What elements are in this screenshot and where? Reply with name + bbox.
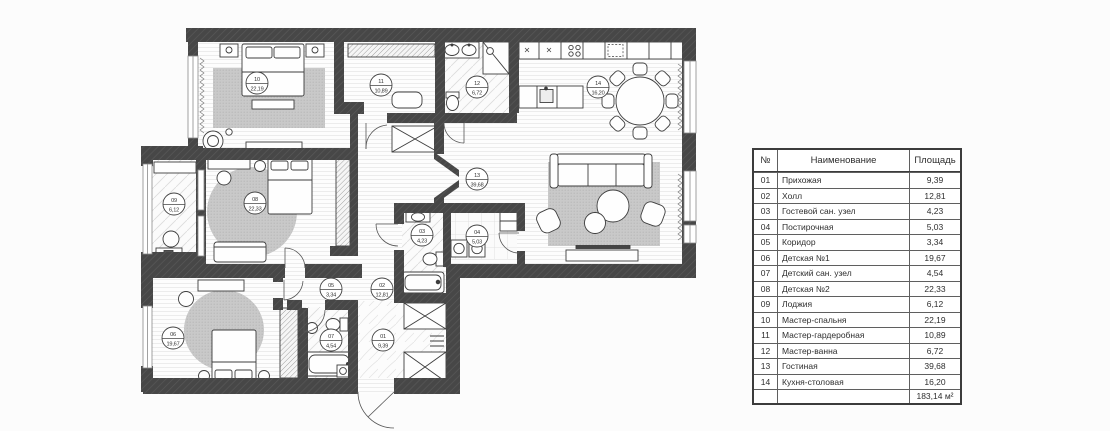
table-row: 14 Кухня-столовая 16,20 [754, 374, 960, 390]
svg-text:06: 06 [170, 332, 176, 338]
desk-kids1 [198, 280, 244, 291]
cell-name: Постирочная [778, 220, 910, 235]
cell-number: 11 [754, 328, 778, 343]
svg-text:5,03: 5,03 [472, 240, 482, 246]
floor-lamp [226, 129, 232, 135]
cell-number: 05 [754, 235, 778, 250]
room-label-09: 096,12 [163, 193, 185, 215]
room-label-07: 074,54 [320, 329, 342, 351]
svg-text:16,20: 16,20 [592, 91, 605, 97]
table-row: 06 Детская №1 19,67 [754, 250, 960, 266]
room-area-table: № Наименование Площадь 01 Прихожая 9,39 … [752, 148, 962, 405]
room-label-04: 045,03 [466, 225, 488, 247]
header-number: № [754, 150, 778, 171]
desk-chair-kids2 [217, 171, 231, 185]
svg-text:07: 07 [328, 334, 334, 340]
cell-name: Мастер-ванна [778, 344, 910, 359]
table-row: 03 Гостевой сан. узел 4,23 [754, 203, 960, 219]
room-label-05: 053,34 [320, 278, 342, 300]
svg-text:9,39: 9,39 [378, 344, 388, 350]
tv-console [566, 250, 638, 261]
coffee-table-small [585, 213, 606, 234]
cell-name: Гостиная [778, 359, 910, 374]
svg-text:39,68: 39,68 [471, 183, 484, 189]
window-master [188, 56, 198, 138]
header-area: Площадь [910, 150, 960, 171]
cell-name: Кухня-столовая [778, 375, 910, 390]
svg-text:09: 09 [171, 198, 177, 204]
svg-text:10: 10 [254, 77, 260, 83]
room-label-11: 1110,89 [370, 74, 392, 96]
tv [576, 246, 630, 249]
table-row: 01 Прихожая 9,39 [754, 172, 960, 188]
cell-area: 9,39 [910, 173, 960, 188]
svg-text:04: 04 [474, 230, 480, 236]
table-row: 02 Холл 12,81 [754, 188, 960, 204]
cell-area: 4,54 [910, 266, 960, 281]
svg-text:22,19: 22,19 [251, 87, 264, 93]
hall-closet [392, 126, 438, 152]
cell-name: Лоджия [778, 297, 910, 312]
cell-area: 6,72 [910, 344, 960, 359]
cell-area: 3,34 [910, 235, 960, 250]
table-row: 04 Постирочная 5,03 [754, 219, 960, 235]
kitchen-island [519, 86, 583, 108]
room-label-13: 1339,68 [466, 168, 488, 190]
door-entrance [358, 392, 394, 428]
svg-text:13: 13 [474, 173, 480, 179]
cell-area: 4,23 [910, 204, 960, 219]
svg-text:4,23: 4,23 [417, 239, 427, 245]
cell-name: Мастер-гардеробная [778, 328, 910, 343]
table-row: 09 Лоджия 6,12 [754, 296, 960, 312]
cell-name: Детская №2 [778, 282, 910, 297]
room-label-01: 019,39 [372, 329, 394, 351]
entry-wardrobe-bottom [404, 352, 446, 382]
cell-number: 13 [754, 359, 778, 374]
closet-rail [348, 44, 435, 57]
room-label-12: 126,72 [466, 76, 488, 98]
sofa [550, 154, 652, 188]
cell-number: 02 [754, 189, 778, 204]
cell-number: 12 [754, 344, 778, 359]
cell-name: Коридор [778, 235, 910, 250]
cell-name: Холл [778, 189, 910, 204]
closet-kids2 [336, 158, 350, 246]
room-label-08: 0822,33 [244, 192, 266, 214]
table-row: 12 Мастер-ванна 6,72 [754, 343, 960, 359]
loggia-shelf [154, 162, 196, 173]
cell-number: 04 [754, 220, 778, 235]
svg-text:22,33: 22,33 [249, 207, 262, 213]
svg-text:02: 02 [379, 283, 385, 289]
cell-number: 14 [754, 375, 778, 390]
cell-number: 03 [754, 204, 778, 219]
svg-text:01: 01 [380, 334, 386, 340]
table-header-row: № Наименование Площадь [754, 150, 960, 172]
svg-text:14: 14 [595, 81, 601, 87]
sofa-kids2 [214, 242, 266, 262]
cell-number: 09 [754, 297, 778, 312]
table-row: 13 Гостиная 39,68 [754, 358, 960, 374]
cell-area: 10,89 [910, 328, 960, 343]
cell-number: 06 [754, 251, 778, 266]
table-row: 07 Детский сан. узел 4,54 [754, 265, 960, 281]
window-kids1 [143, 306, 152, 368]
header-name: Наименование [778, 150, 910, 171]
cell-number: 01 [754, 173, 778, 188]
cell-area: 12,81 [910, 189, 960, 204]
svg-text:12,81: 12,81 [376, 293, 389, 299]
window-living-2 [684, 225, 696, 243]
loggia-chair [163, 231, 179, 247]
cell-name: Прихожая [778, 173, 910, 188]
floor-plan-sheet: 019,39 0212,81 034,23 045,03 053,34 0619… [0, 0, 1110, 431]
svg-text:08: 08 [252, 197, 258, 203]
table-total-row: 183,14 м² [754, 389, 960, 403]
cell-area: 39,68 [910, 359, 960, 374]
table-row: 05 Коридор 3,34 [754, 234, 960, 250]
entry-wardrobe-top [404, 303, 446, 329]
cell-number [754, 390, 778, 403]
svg-text:3,34: 3,34 [326, 293, 336, 299]
cell-name [778, 390, 910, 403]
window-living-1 [684, 171, 696, 221]
room-label-02: 0212,81 [371, 278, 393, 300]
table-row: 10 Мастер-спальня 22,19 [754, 312, 960, 328]
room-label-06: 0619,67 [162, 327, 184, 349]
cell-name: Мастер-спальня [778, 313, 910, 328]
room-label-03: 034,23 [411, 224, 433, 246]
window-kitchen [684, 61, 696, 133]
closet-kids1 [280, 308, 298, 378]
svg-text:6,12: 6,12 [169, 208, 179, 214]
room-label-14: 1416,20 [587, 76, 609, 98]
cell-area: 19,67 [910, 251, 960, 266]
svg-text:12: 12 [474, 81, 480, 87]
cell-number: 10 [754, 313, 778, 328]
table-row: 11 Мастер-гардеробная 10,89 [754, 327, 960, 343]
desk-chair-kids1 [179, 292, 194, 307]
table-row: 08 Детская №2 22,33 [754, 281, 960, 297]
svg-text:11: 11 [378, 79, 383, 85]
cell-area: 16,20 [910, 375, 960, 390]
cell-name: Детский сан. узел [778, 266, 910, 281]
svg-text:05: 05 [328, 283, 334, 289]
cell-area: 22,33 [910, 282, 960, 297]
cell-name: Детская №1 [778, 251, 910, 266]
ottoman [392, 92, 422, 108]
svg-text:19,67: 19,67 [167, 342, 180, 348]
room-label-10: 1022,19 [246, 72, 268, 94]
cell-area: 5,03 [910, 220, 960, 235]
cell-number: 08 [754, 282, 778, 297]
svg-text:6,72: 6,72 [472, 91, 482, 97]
dining-set [602, 63, 678, 139]
svg-text:03: 03 [419, 229, 425, 235]
cell-area: 6,12 [910, 297, 960, 312]
svg-text:10,89: 10,89 [375, 89, 388, 95]
lounge-chair-seat [208, 136, 219, 147]
cell-name: Гостевой сан. узел [778, 204, 910, 219]
svg-text:4,54: 4,54 [326, 344, 336, 350]
kitchen-cabinets [519, 42, 690, 59]
total-area-value: 183,14 м² [910, 390, 960, 403]
cell-number: 07 [754, 266, 778, 281]
cell-area: 22,19 [910, 313, 960, 328]
window-loggia [143, 164, 152, 254]
